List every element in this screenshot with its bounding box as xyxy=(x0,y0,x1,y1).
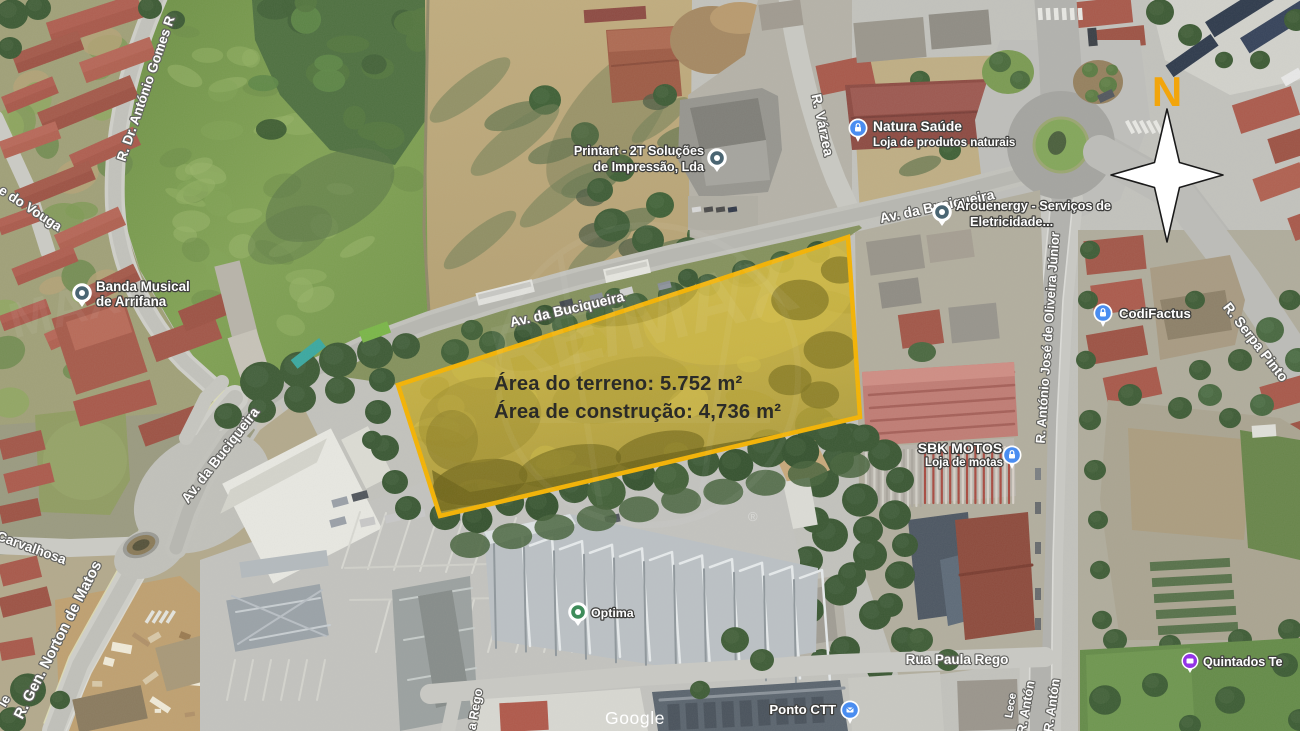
svg-text:Arouenergy - Serviços de: Arouenergy - Serviços de xyxy=(956,198,1111,213)
svg-text:Loja de produtos naturais: Loja de produtos naturais xyxy=(873,136,1015,149)
svg-text:N: N xyxy=(1152,68,1182,115)
svg-text:Eletricidade...: Eletricidade... xyxy=(970,214,1053,229)
svg-text:Rua Paula Rego: Rua Paula Rego xyxy=(906,652,1009,667)
svg-text:Área do terreno: 5.752 m²: Área do terreno: 5.752 m² xyxy=(494,372,743,395)
svg-text:Área de construção: 4,736 m²: Área de construção: 4,736 m² xyxy=(494,400,781,423)
svg-text:Loja de motas: Loja de motas xyxy=(925,456,1003,469)
svg-text:SBK MOTOS: SBK MOTOS xyxy=(918,440,1003,456)
svg-text:CodiFactus: CodiFactus xyxy=(1119,306,1191,321)
svg-text:Quintados Te: Quintados Te xyxy=(1203,655,1283,669)
svg-text:Printart - 2T Soluções: Printart - 2T Soluções xyxy=(574,144,704,158)
svg-text:de Impressão, Lda: de Impressão, Lda xyxy=(593,160,705,174)
svg-text:®: ® xyxy=(748,509,758,524)
svg-text:Ponto CTT: Ponto CTT xyxy=(769,702,836,717)
svg-text:Natura Saúde: Natura Saúde xyxy=(873,119,962,134)
svg-text:de Arrifana: de Arrifana xyxy=(96,294,167,309)
svg-text:Banda Musical: Banda Musical xyxy=(96,279,190,294)
svg-text:Google: Google xyxy=(605,708,665,728)
svg-text:Optima: Optima xyxy=(591,606,634,620)
